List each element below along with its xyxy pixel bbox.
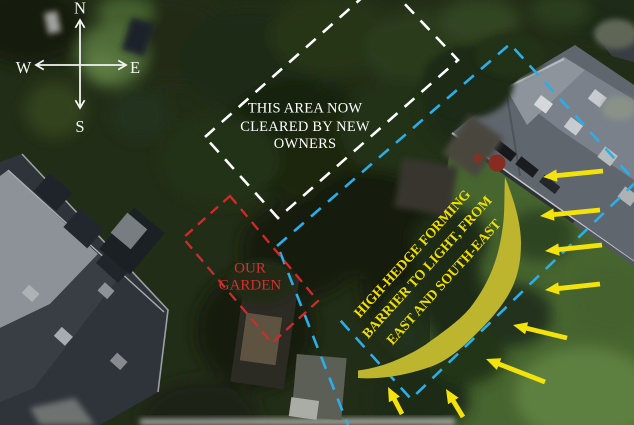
- svg-text:THIS AREA NOW: THIS AREA NOW: [248, 101, 363, 117]
- svg-text:N: N: [74, 0, 86, 18]
- svg-text:OWNERS: OWNERS: [274, 136, 336, 152]
- svg-text:W: W: [16, 58, 32, 77]
- svg-text:CLEARED BY NEW: CLEARED BY NEW: [240, 119, 370, 135]
- svg-text:S: S: [75, 117, 84, 136]
- svg-text:E: E: [130, 58, 140, 77]
- svg-text:OUR: OUR: [234, 261, 266, 277]
- svg-text:GARDEN: GARDEN: [219, 278, 282, 294]
